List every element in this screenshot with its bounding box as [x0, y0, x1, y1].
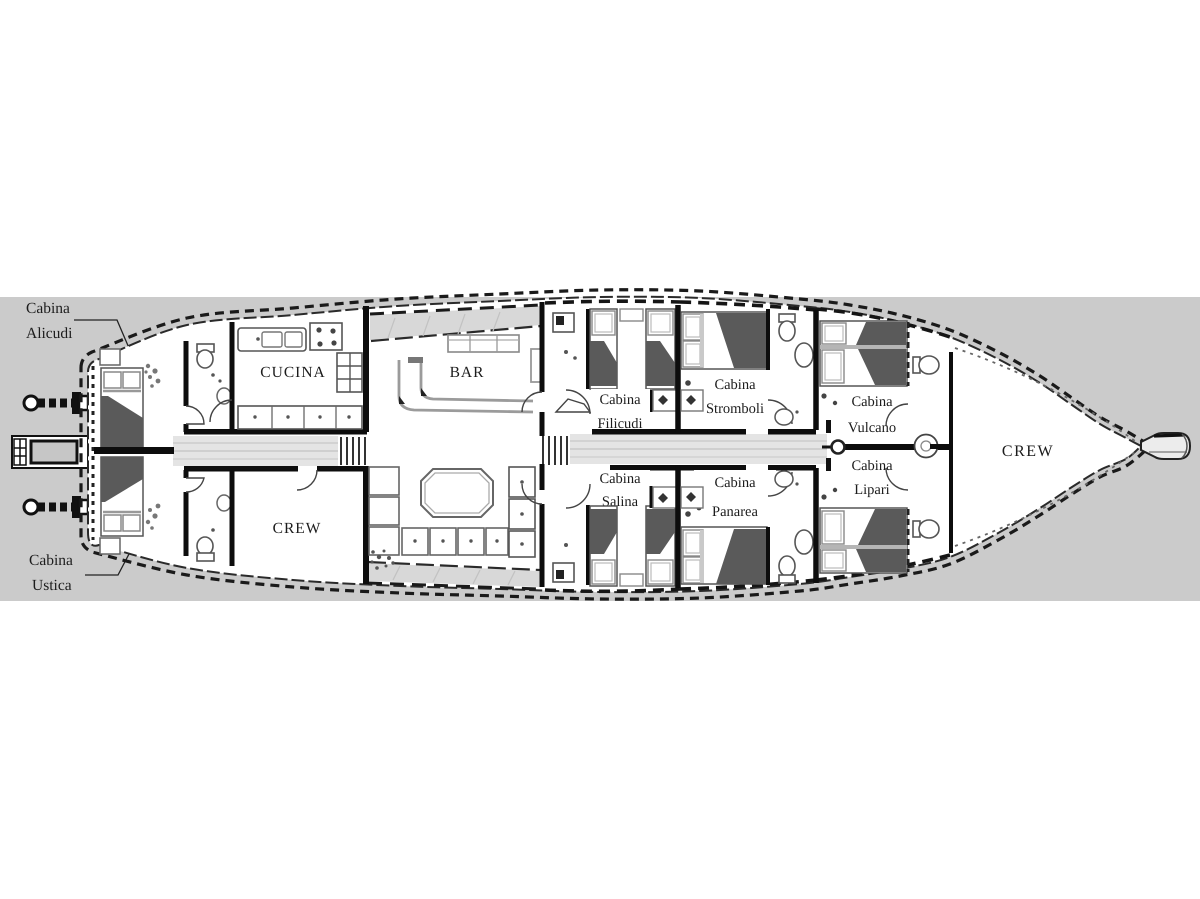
- svg-text:BAR: BAR: [450, 364, 485, 381]
- svg-text:Cabina: Cabina: [714, 475, 756, 491]
- svg-text:Stromboli: Stromboli: [706, 401, 764, 417]
- svg-text:CREW: CREW: [1002, 443, 1054, 460]
- svg-text:Cabina: Cabina: [599, 471, 641, 487]
- svg-text:CREW: CREW: [273, 520, 322, 537]
- svg-text:Vulcano: Vulcano: [848, 420, 896, 436]
- svg-text:Cabina: Cabina: [714, 377, 756, 393]
- svg-text:Alicudi: Alicudi: [26, 325, 73, 342]
- svg-text:CUCINA: CUCINA: [260, 364, 325, 381]
- svg-text:Lipari: Lipari: [854, 482, 889, 498]
- svg-text:Panarea: Panarea: [712, 504, 758, 520]
- svg-text:Cabina: Cabina: [599, 392, 641, 408]
- svg-text:Cabina: Cabina: [29, 552, 73, 569]
- svg-text:Cabina: Cabina: [851, 394, 893, 410]
- svg-text:Cabina: Cabina: [26, 300, 70, 317]
- svg-text:Ustica: Ustica: [32, 577, 72, 594]
